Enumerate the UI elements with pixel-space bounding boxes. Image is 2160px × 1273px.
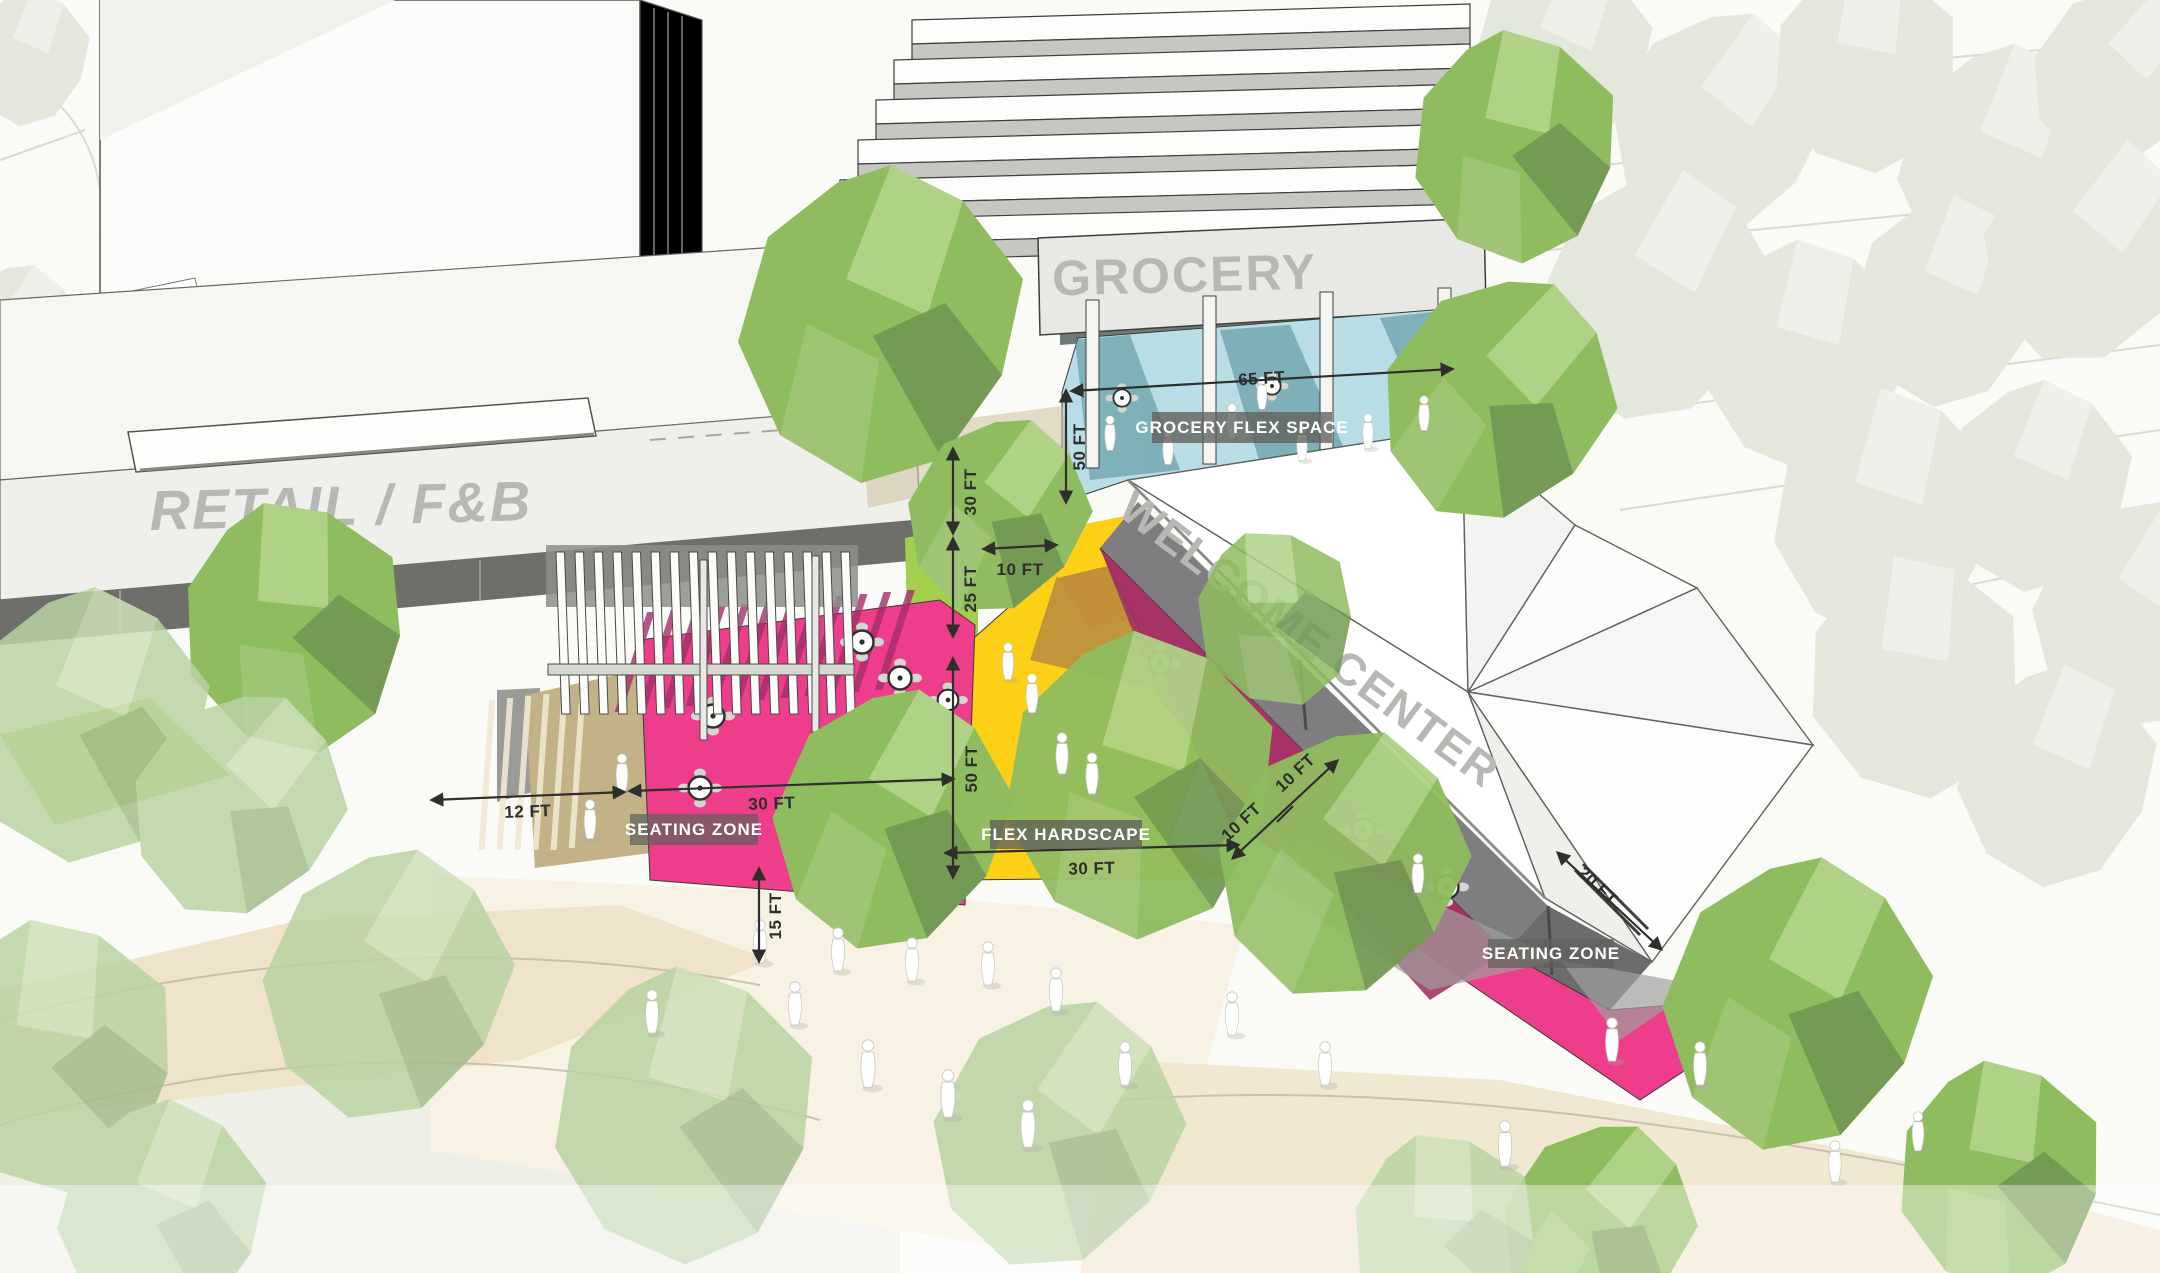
badge-flex-hardscape-label: FLEX HARDSCAPE	[981, 825, 1151, 844]
badge-grocery-flex-space: GROCERY FLEX SPACE	[1135, 412, 1348, 443]
badge-grocery-flex-label: GROCERY FLEX SPACE	[1135, 418, 1348, 437]
site-plan-rendering: RETAIL / F&B GROCERY	[0, 0, 2160, 1273]
dim-label-65ft: 65 FT	[1238, 368, 1286, 390]
dim-label-15ft: 15 FT	[766, 892, 785, 939]
badge-flex-hardscape: FLEX HARDSCAPE	[981, 820, 1151, 849]
dim-label-50ft-hardscape: 50 FT	[962, 745, 981, 792]
dim-label-30ft-planting: 30 FT	[961, 468, 980, 515]
dim-label-50ft-flex: 50 FT	[1070, 423, 1089, 470]
dim-label-12ft: 12 FT	[504, 801, 552, 822]
grocery-label: GROCERY	[1051, 244, 1317, 307]
dim-label-30ft-hardscape: 30 FT	[1068, 858, 1115, 878]
dim-label-30ft-seating: 30 FT	[748, 793, 796, 814]
foreground-fade	[0, 1185, 2160, 1273]
badge-seating-zone-east: SEATING ZONE	[1482, 939, 1620, 968]
dim-label-25ft: 25 FT	[961, 565, 980, 612]
badge-seating-east-label: SEATING ZONE	[1482, 944, 1620, 963]
person-figure	[1226, 992, 1245, 1040]
context-tree	[0, 0, 90, 126]
site-plan-canvas: RETAIL / F&B GROCERY	[0, 0, 2160, 1273]
badge-seating-west-label: SEATING ZONE	[625, 820, 763, 839]
dim-label-10ft-walk: 10 FT	[997, 560, 1044, 579]
badge-seating-zone-west: SEATING ZONE	[625, 814, 763, 845]
